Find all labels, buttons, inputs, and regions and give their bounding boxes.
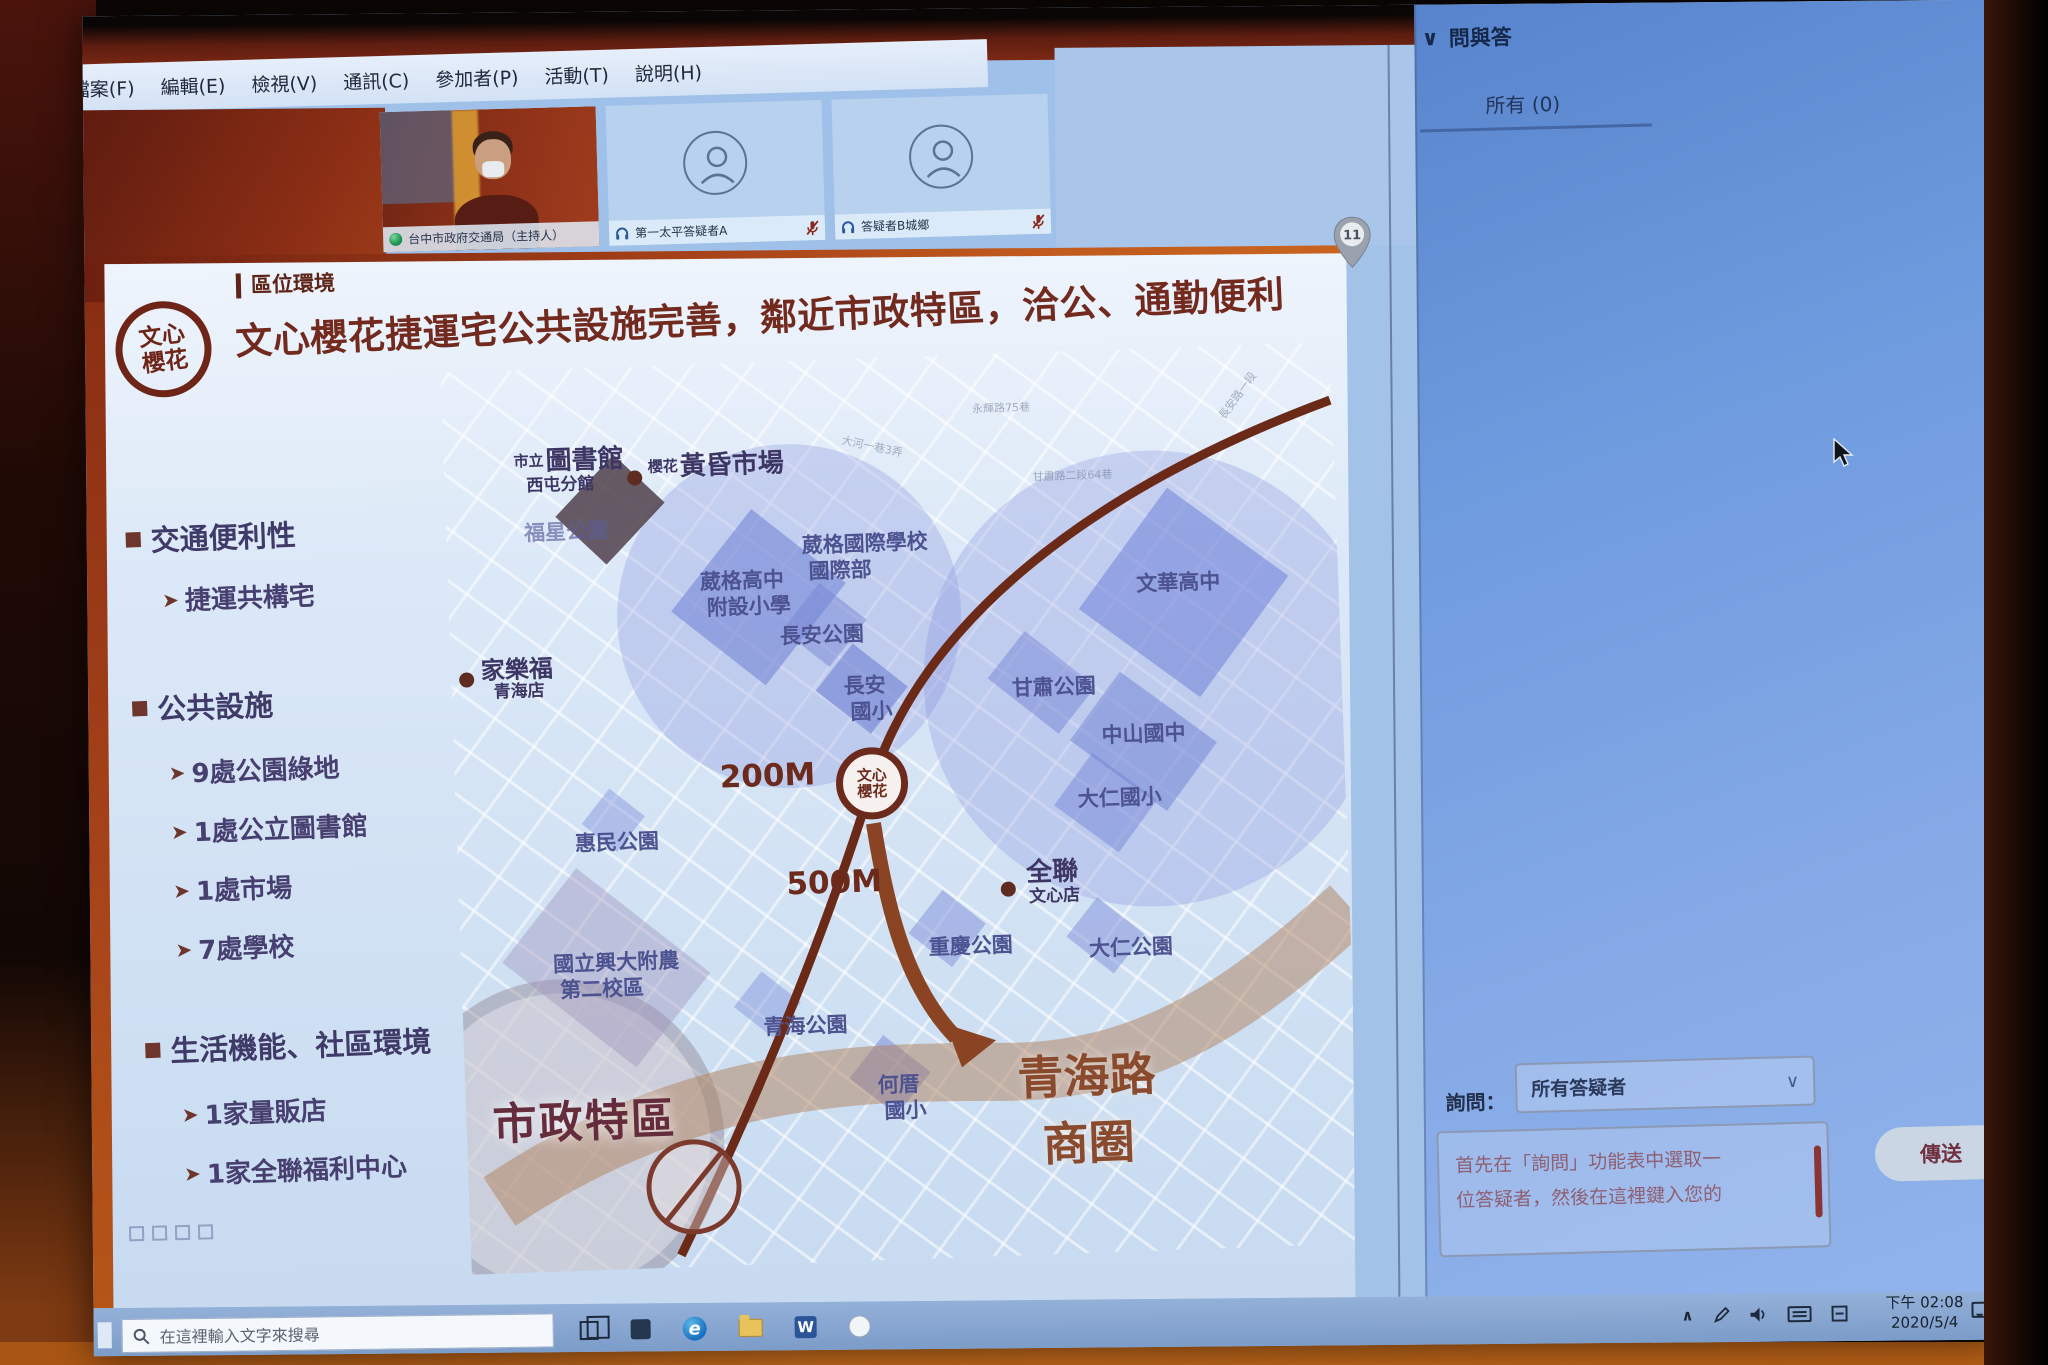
map-label: 國立興大附農第二校區 bbox=[553, 947, 681, 1004]
qa-tab-underline bbox=[1420, 123, 1652, 132]
search-placeholder: 在這裡輸入文字來搜尋 bbox=[160, 1321, 320, 1347]
video-thumbnail-panelist-a[interactable]: 第一太平答疑者A bbox=[606, 100, 826, 246]
participant-name: 第一太平答疑者A bbox=[635, 220, 800, 242]
video-thumbnail-panelist-b[interactable]: 答疑者B城鄉 bbox=[831, 94, 1051, 240]
map-label: 青海公園 bbox=[763, 1011, 848, 1040]
shared-slide: 文心 櫻花 區位環境 文心櫻花捷運宅公共設施完善，鄰近市政特區，洽公、通勤便利 … bbox=[104, 253, 1355, 1308]
headset-icon bbox=[841, 220, 855, 234]
map-label: 大仁公園 bbox=[1089, 933, 1174, 962]
clock-time: 下午 02:08 bbox=[1885, 1293, 1963, 1314]
taskbar-clock[interactable]: 下午 02:08 2020/5/4 bbox=[1885, 1293, 1964, 1333]
speaker-icon[interactable] bbox=[1749, 1307, 1767, 1323]
map-label-civic-district: 市政特區 bbox=[492, 1087, 678, 1157]
bullet-item: ➤9處公園綠地 bbox=[134, 743, 470, 793]
headset-icon bbox=[615, 226, 629, 240]
annotation-tool-icon[interactable] bbox=[198, 1224, 213, 1239]
bullet-item: ➤1家全聯福利中心 bbox=[149, 1143, 485, 1193]
avatar-icon bbox=[925, 138, 962, 179]
bullet-section-header: 生活機能、社區環境 bbox=[145, 1016, 481, 1071]
projected-screen: 檔案(F) 編輯(E) 檢視(V) 通訊(C) 參加者(P) 活動(T) 說明(… bbox=[82, 0, 1998, 1356]
ask-target-dropdown[interactable]: 所有答疑者 ∨ bbox=[1515, 1056, 1816, 1114]
mouse-cursor bbox=[1832, 438, 1858, 472]
arrow-bullet-icon: ➤ bbox=[168, 760, 186, 785]
menu-edit[interactable]: 編輯(E) bbox=[160, 71, 226, 100]
arrow-bullet-icon: ➤ bbox=[184, 1161, 202, 1186]
pen-icon[interactable] bbox=[1713, 1307, 1729, 1323]
distance-500m: 500M bbox=[786, 863, 883, 902]
arrow-bullet-icon: ➤ bbox=[175, 937, 193, 962]
street-label: 永輝路75巷 bbox=[972, 399, 1031, 417]
slide-kicker: 區位環境 bbox=[236, 271, 336, 299]
map-label: 長安公園 bbox=[779, 621, 864, 650]
chevron-down-icon: ∨ bbox=[1786, 1070, 1800, 1091]
qa-tab-all[interactable]: 所有 (0) bbox=[1485, 88, 1560, 119]
menu-events[interactable]: 活動(T) bbox=[544, 60, 609, 89]
annotation-tool-icon[interactable] bbox=[152, 1225, 167, 1240]
map-label: 福星公園 bbox=[524, 517, 609, 546]
square-bullet-icon bbox=[145, 1042, 161, 1058]
ime-icon[interactable] bbox=[1831, 1305, 1847, 1321]
clock-date: 2020/5/4 bbox=[1886, 1312, 1964, 1333]
map-label-carrefour: 家樂福 青海店 bbox=[480, 655, 554, 703]
search-icon bbox=[133, 1327, 150, 1344]
curtain-left bbox=[0, 0, 96, 1365]
menu-participants[interactable]: 參加者(P) bbox=[435, 63, 519, 92]
slide-bullet-list: 交通便利性 ➤捷運共構宅 公共設施 ➤9處公園綠地 ➤1處公立圖書館 ➤1處市場… bbox=[125, 506, 486, 1193]
bullet-item: ➤7處學校 bbox=[141, 919, 477, 969]
menu-communicate[interactable]: 通訊(C) bbox=[343, 66, 410, 95]
ask-label: 詢問： bbox=[1445, 1086, 1506, 1117]
video-thumbnail-host[interactable]: 台中市政府交通局（主持人） bbox=[380, 106, 600, 252]
question-input[interactable]: 首先在「詢問」功能表中選取一 位答疑者，然後在這裡鍵入您的 bbox=[1436, 1121, 1831, 1257]
bullet-section-header: 交通便利性 bbox=[125, 506, 461, 561]
participant-name: 台中市政府交通局（主持人） bbox=[408, 225, 593, 247]
map-label-library: 市立圖書館 西屯分館 bbox=[513, 445, 625, 496]
content-gap bbox=[1346, 245, 1425, 1298]
task-view-icon[interactable] bbox=[580, 1320, 599, 1339]
project-logo: 文心 櫻花 bbox=[110, 295, 218, 403]
distance-200m: 200M bbox=[719, 756, 816, 795]
avatar bbox=[682, 130, 748, 196]
location-map: 永輝路75巷 大河一巷3弄 甘肅路二段64巷 長安路一段 市立圖書館 西屯分館 … bbox=[440, 342, 1355, 1275]
muted-mic-icon bbox=[1032, 214, 1045, 229]
bullet-item: ➤捷運共構宅 bbox=[127, 570, 463, 620]
map-pin-11: 11 bbox=[1332, 215, 1373, 273]
arrow-bullet-icon: ➤ bbox=[173, 878, 191, 903]
presenter-backdrop-screen bbox=[380, 110, 457, 204]
send-button[interactable]: 傳送 bbox=[1874, 1125, 1997, 1182]
taskbar-search[interactable]: 在這裡輸入文字來搜尋 bbox=[121, 1313, 553, 1353]
map-label: 重慶公園 bbox=[928, 932, 1013, 961]
annotation-tool-icon[interactable] bbox=[129, 1226, 144, 1241]
square-bullet-icon bbox=[125, 532, 141, 548]
bullet-item: ➤1處市場 bbox=[139, 860, 475, 910]
map-label: 大仁國小 bbox=[1077, 783, 1162, 812]
map-label: 長安國小 bbox=[843, 672, 893, 726]
room-photo: 檔案(F) 編輯(E) 檢視(V) 通訊(C) 參加者(P) 活動(T) 說明(… bbox=[0, 0, 2048, 1365]
edge-browser-icon[interactable]: e bbox=[683, 1316, 707, 1340]
webex-ball-icon bbox=[389, 233, 402, 246]
menu-help[interactable]: 說明(H) bbox=[634, 58, 702, 87]
map-label: 葳格高中附設小學 bbox=[699, 566, 791, 622]
arrow-bullet-icon: ➤ bbox=[181, 1102, 199, 1127]
presenter-mask bbox=[482, 161, 504, 178]
touch-keyboard-icon[interactable] bbox=[1787, 1306, 1811, 1322]
bullet-item: ➤1家量販店 bbox=[147, 1084, 483, 1134]
map-label-qinghai-road: 青海路 商圈 bbox=[1016, 1041, 1159, 1179]
scrollbar[interactable] bbox=[1814, 1145, 1823, 1217]
video-thumbnail-strip: 台中市政府交通局（主持人） 第一太平答疑者A bbox=[380, 93, 1064, 264]
svg-text:11: 11 bbox=[1343, 228, 1361, 243]
menu-view[interactable]: 檢視(V) bbox=[251, 68, 318, 97]
square-bullet-icon bbox=[132, 700, 148, 716]
avatar bbox=[908, 124, 974, 190]
pinned-app-icon[interactable] bbox=[631, 1319, 651, 1339]
hidden-icons-chevron[interactable]: ∧ bbox=[1681, 1306, 1693, 1324]
avatar-icon bbox=[699, 144, 736, 185]
app-disc-icon[interactable] bbox=[849, 1315, 871, 1337]
muted-mic-icon bbox=[806, 220, 819, 235]
annotation-tool-icon[interactable] bbox=[175, 1225, 190, 1240]
map-label: 中山國中 bbox=[1101, 719, 1186, 748]
chevron-down-icon: ∨ bbox=[1421, 26, 1439, 50]
menu-file[interactable]: 檔案(F) bbox=[82, 73, 135, 102]
map-label: 甘肅公園 bbox=[1011, 673, 1096, 702]
annotation-toolbar[interactable] bbox=[129, 1224, 213, 1241]
word-icon[interactable]: W bbox=[795, 1316, 817, 1338]
bullet-item: ➤1處公立圖書館 bbox=[136, 802, 472, 852]
street-label: 甘肅路二段64巷 bbox=[1032, 466, 1113, 485]
qa-panel-header[interactable]: ∨ 問與答 bbox=[1421, 21, 1512, 53]
map-label-market: 櫻花黃昏市場 bbox=[647, 449, 784, 482]
bullet-section-header: 公共設施 bbox=[131, 675, 467, 730]
participant-name: 答疑者B城鄉 bbox=[861, 213, 1026, 235]
map-label: 文華高中 bbox=[1136, 568, 1221, 597]
arrow-bullet-icon: ➤ bbox=[171, 819, 189, 844]
qa-panel: ∨ 問與答 所有 (0) 詢問： 所有答疑者 ∨ 首先在「詢問」功能表中選取一 … bbox=[1414, 0, 1997, 1297]
file-explorer-icon[interactable] bbox=[739, 1319, 763, 1337]
stage-backdrop bbox=[83, 108, 386, 263]
map-label-pxmart: 全聯 文心店 bbox=[1026, 857, 1081, 906]
map-label: 葳格國際學校國際部 bbox=[801, 528, 929, 585]
arrow-bullet-icon: ➤ bbox=[162, 587, 180, 612]
map-label: 惠民公園 bbox=[575, 828, 660, 857]
start-button[interactable] bbox=[98, 1322, 112, 1348]
map-label: 何厝國小 bbox=[877, 1071, 927, 1125]
photo-right-edge bbox=[1984, 0, 2048, 1365]
